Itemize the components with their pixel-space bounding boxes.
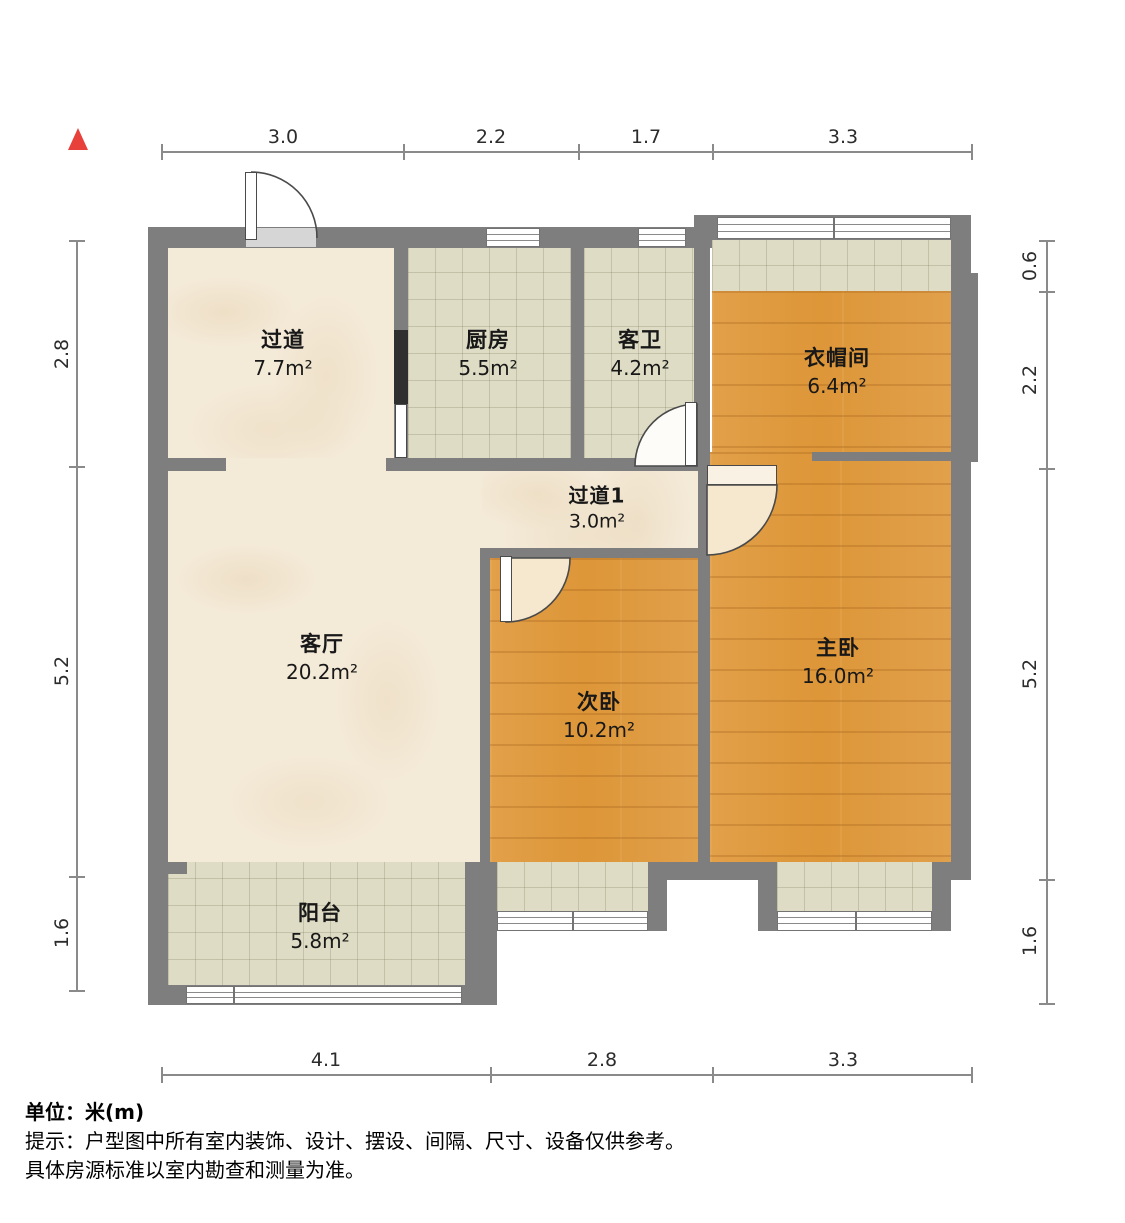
- dim-tick: [971, 1067, 973, 1083]
- dim-line-left: [76, 241, 78, 992]
- dim-label-right: 2.2: [1019, 365, 1041, 395]
- dim-tick: [69, 466, 85, 468]
- window-mullion: [233, 987, 235, 1003]
- cloakroom-window: [717, 217, 951, 239]
- room-label-kitchen: 厨房 5.5m²: [458, 324, 517, 380]
- dim-tick: [712, 1067, 714, 1083]
- dim-label-right: 0.6: [1019, 251, 1041, 281]
- room-area: 20.2m²: [286, 660, 358, 684]
- dim-label-left: 5.2: [51, 656, 73, 686]
- wall-bottom-middle: [667, 862, 758, 880]
- wall-bay-stub-1: [648, 862, 667, 931]
- wall-bay-stub-3: [932, 862, 951, 931]
- dim-label-top: 2.2: [476, 126, 506, 148]
- wall-living-second-bedroom: [480, 548, 490, 872]
- window-mullion: [833, 218, 835, 238]
- room-label-hallway1: 过道1 3.0m²: [569, 480, 626, 533]
- window-mullion: [572, 912, 574, 930]
- dim-tick: [490, 1067, 492, 1083]
- master-bedroom-bay-window: [777, 911, 932, 931]
- room-label-second-bedroom: 次卧 10.2m²: [563, 686, 635, 742]
- dim-label-right: 1.6: [1019, 926, 1041, 956]
- dim-tick: [712, 144, 714, 160]
- room-name: 厨房: [458, 324, 517, 354]
- floor-plan: 小牛看房 小牛看房 小牛看房 小牛看房 小牛看房 小牛看房: [0, 0, 1125, 1223]
- wall-cloakroom-master-stub: [812, 452, 951, 461]
- dim-tick: [1039, 291, 1055, 293]
- wall-balcony-stub-left: [168, 862, 187, 874]
- room-label-master-bedroom: 主卧 16.0m²: [802, 632, 874, 688]
- room-name: 客厅: [286, 628, 358, 658]
- dim-line-top: [162, 151, 973, 153]
- floor-bay-second-bedroom: [497, 862, 648, 915]
- dim-tick: [161, 1067, 163, 1083]
- kitchen-window: [486, 228, 540, 247]
- dim-label-top: 3.0: [268, 126, 298, 148]
- room-area: 3.0m²: [569, 511, 626, 533]
- room-name: 衣帽间: [804, 342, 870, 372]
- floor-cloakroom-ledge: [712, 240, 951, 293]
- balcony-window: [186, 986, 462, 1004]
- kitchen-sliding-door-leaf: [395, 404, 407, 458]
- wall-under-kitchen-bath: [386, 458, 706, 471]
- dim-tick: [403, 144, 405, 160]
- room-name: 主卧: [802, 632, 874, 662]
- floor-bay-master-bedroom: [777, 862, 932, 915]
- dim-label-top: 1.7: [631, 126, 661, 148]
- tip-note-line2: 具体房源标准以室内勘查和测量为准。: [25, 1156, 685, 1185]
- second-bedroom-door-leaf: [500, 556, 512, 622]
- wall-stub-hallway-living: [148, 458, 226, 471]
- guest-bath-door-leaf: [685, 402, 697, 466]
- dim-label-left: 2.8: [51, 339, 73, 369]
- dim-label-top: 3.3: [828, 126, 858, 148]
- wall-right-step: [971, 273, 978, 462]
- entry-door-leaf: [245, 172, 257, 240]
- dim-tick: [69, 240, 85, 242]
- dim-label-bottom: 2.8: [587, 1049, 617, 1071]
- dim-tick: [1039, 879, 1055, 881]
- room-label-hallway: 过道 7.7m²: [253, 324, 312, 380]
- room-label-guest-bath: 客卫 4.2m²: [610, 324, 669, 380]
- wall-kitchen-bath: [571, 248, 584, 462]
- room-name: 阳台: [290, 897, 349, 927]
- guest-bath-window: [638, 228, 686, 247]
- dim-tick: [161, 144, 163, 160]
- unit-note: 单位：米(m): [25, 1098, 685, 1127]
- room-area: 4.2m²: [610, 356, 669, 380]
- room-name: 过道1: [569, 480, 626, 509]
- room-label-balcony: 阳台 5.8m²: [290, 897, 349, 953]
- dim-label-right: 5.2: [1019, 659, 1041, 689]
- north-marker-icon: [68, 128, 88, 150]
- wall-right: [951, 215, 971, 880]
- wall-balcony-east: [465, 862, 497, 1005]
- room-area: 7.7m²: [253, 356, 312, 380]
- room-area: 10.2m²: [563, 718, 635, 742]
- dim-tick: [1039, 240, 1055, 242]
- room-area: 5.8m²: [290, 929, 349, 953]
- room-area: 16.0m²: [802, 664, 874, 688]
- second-bedroom-bay-window: [497, 911, 648, 931]
- dim-tick: [69, 990, 85, 992]
- footer-notes: 单位：米(m) 提示：户型图中所有室内装饰、设计、摆设、间隔、尺寸、设备仅供参考…: [25, 1098, 685, 1185]
- master-bedroom-door-leaf: [707, 465, 777, 485]
- kitchen-sliding-door-pocket: [394, 330, 408, 404]
- room-label-living-room: 客厅 20.2m²: [286, 628, 358, 684]
- dim-tick: [578, 144, 580, 160]
- wall-bay-stub-2: [758, 862, 777, 931]
- dim-label-left: 1.6: [51, 918, 73, 948]
- tip-note-line1: 提示：户型图中所有室内装饰、设计、摆设、间隔、尺寸、设备仅供参考。: [25, 1127, 685, 1156]
- wall-left: [148, 227, 168, 1005]
- window-mullion: [855, 912, 857, 930]
- room-area: 5.5m²: [458, 356, 517, 380]
- dim-tick: [69, 876, 85, 878]
- dim-label-bottom: 4.1: [311, 1049, 341, 1071]
- dim-tick: [971, 144, 973, 160]
- dim-line-bottom: [162, 1074, 973, 1076]
- room-name: 次卧: [563, 686, 635, 716]
- room-label-cloakroom: 衣帽间 6.4m²: [804, 342, 870, 398]
- wall-top-left: [148, 227, 712, 248]
- dim-line-right: [1046, 241, 1048, 1005]
- dim-label-bottom: 3.3: [828, 1049, 858, 1071]
- room-name: 客卫: [610, 324, 669, 354]
- room-name: 过道: [253, 324, 312, 354]
- wall-hallway1-south: [482, 548, 700, 558]
- wall-second-master-bedroom: [698, 471, 710, 880]
- room-area: 6.4m²: [804, 374, 870, 398]
- dim-tick: [1039, 468, 1055, 470]
- dim-tick: [1039, 1003, 1055, 1005]
